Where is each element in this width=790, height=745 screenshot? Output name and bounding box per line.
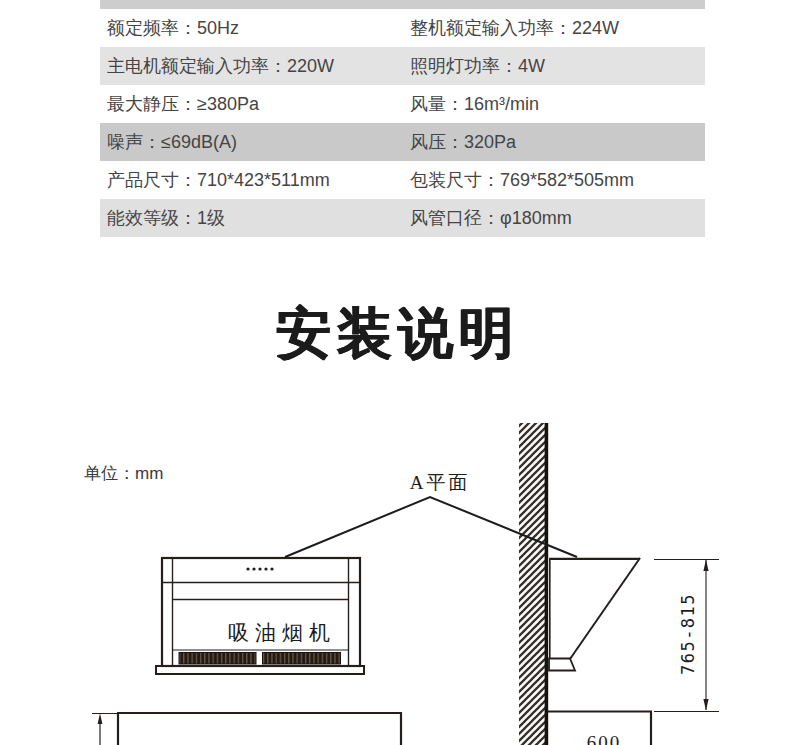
hood-label: 吸油烟机 <box>228 621 336 645</box>
counter-right: 600 <box>548 712 652 745</box>
hood-side-foot <box>549 659 575 671</box>
unit-label: 单位：mm <box>84 464 163 483</box>
depth-dimension-label: 600 <box>587 732 622 745</box>
hood-side-body <box>549 558 640 659</box>
counter-arrow-up <box>98 713 103 724</box>
plane-label: A平面 <box>410 472 471 493</box>
wall-section <box>519 423 548 745</box>
counter-left <box>92 713 402 745</box>
hood-front-view: 吸油烟机 <box>156 558 364 674</box>
dim-arrow-down <box>703 699 708 711</box>
product-spec-page: 额定频率：50Hz 整机额定输入功率：224W 主电机额定输入功率：220W 照… <box>0 0 790 745</box>
hood-side-view <box>549 558 640 671</box>
dim-arrow-up <box>703 560 708 572</box>
hood-bottom-lip <box>156 666 364 674</box>
height-dimension: 765-815 <box>654 560 719 712</box>
grill-right <box>263 653 341 665</box>
wall-edge-line <box>545 423 549 745</box>
wall-hatching <box>519 423 548 745</box>
height-dimension-label: 765-815 <box>678 593 698 675</box>
installation-diagram: 吸油烟机 765-815 A平面 <box>0 0 790 745</box>
grill-left <box>179 653 256 665</box>
